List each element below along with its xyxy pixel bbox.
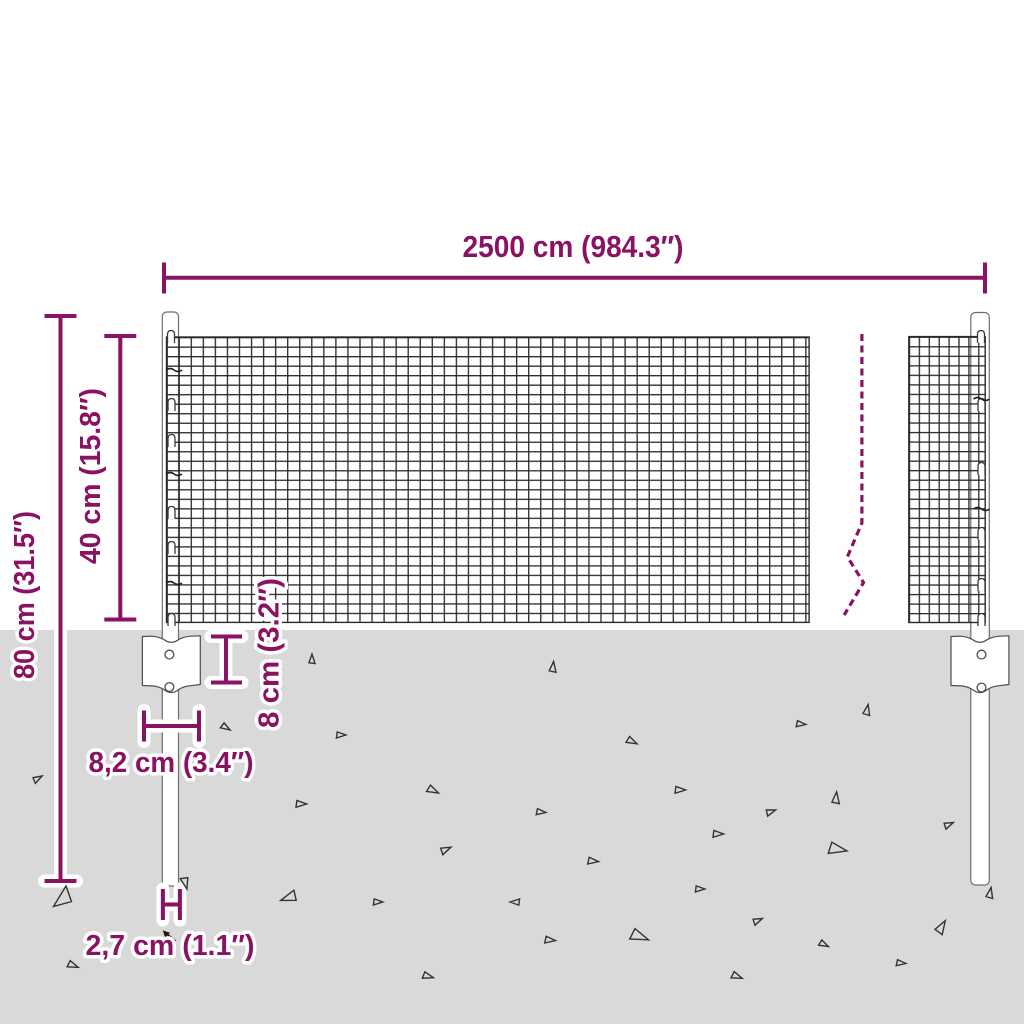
svg-text:80 cm (31.5″): 80 cm (31.5″): [9, 511, 41, 679]
svg-text:8,2 cm (3.4″): 8,2 cm (3.4″): [89, 747, 254, 779]
svg-text:2500 cm (984.3″): 2500 cm (984.3″): [463, 230, 684, 264]
svg-text:2,7 cm (1.1″): 2,7 cm (1.1″): [86, 930, 255, 962]
svg-text:8 cm (3.2″): 8 cm (3.2″): [254, 578, 286, 728]
svg-text:40 cm (15.8″): 40 cm (15.8″): [75, 388, 107, 564]
